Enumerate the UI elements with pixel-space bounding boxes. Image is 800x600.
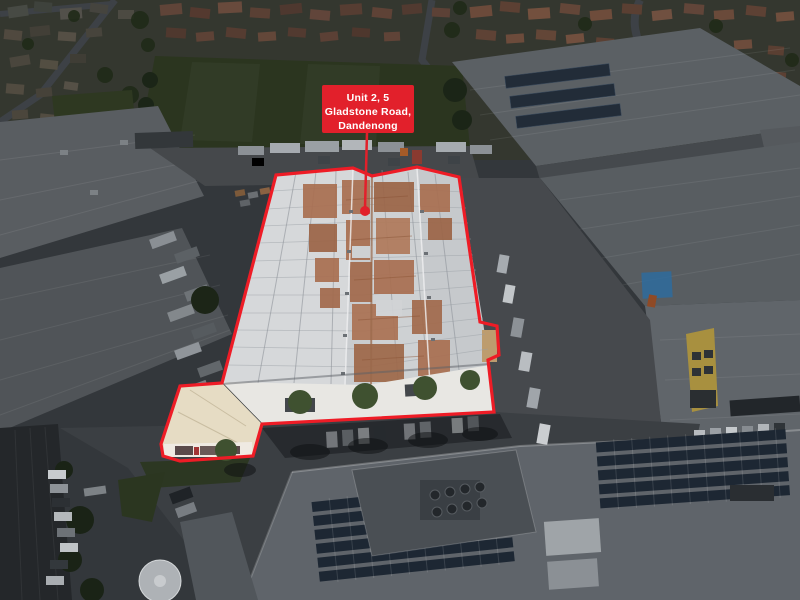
blue-signage-wall (641, 271, 672, 299)
address-label-line3: Dandenong (338, 120, 398, 132)
leader-dot-icon (360, 206, 370, 216)
aerial-photo: Unit 2, 5 Gladstone Road, Dandenong (0, 0, 800, 600)
address-label-line2: Gladstone Road, (325, 106, 411, 118)
address-label-line1: Unit 2, 5 (347, 92, 390, 104)
aerial-photo-canvas: Unit 2, 5 Gladstone Road, Dandenong (0, 0, 800, 600)
street-median-grass (118, 472, 165, 522)
yellow-wall-building (686, 328, 718, 412)
pallet-stacks (235, 187, 271, 207)
pedestrian-crossing (84, 486, 107, 497)
